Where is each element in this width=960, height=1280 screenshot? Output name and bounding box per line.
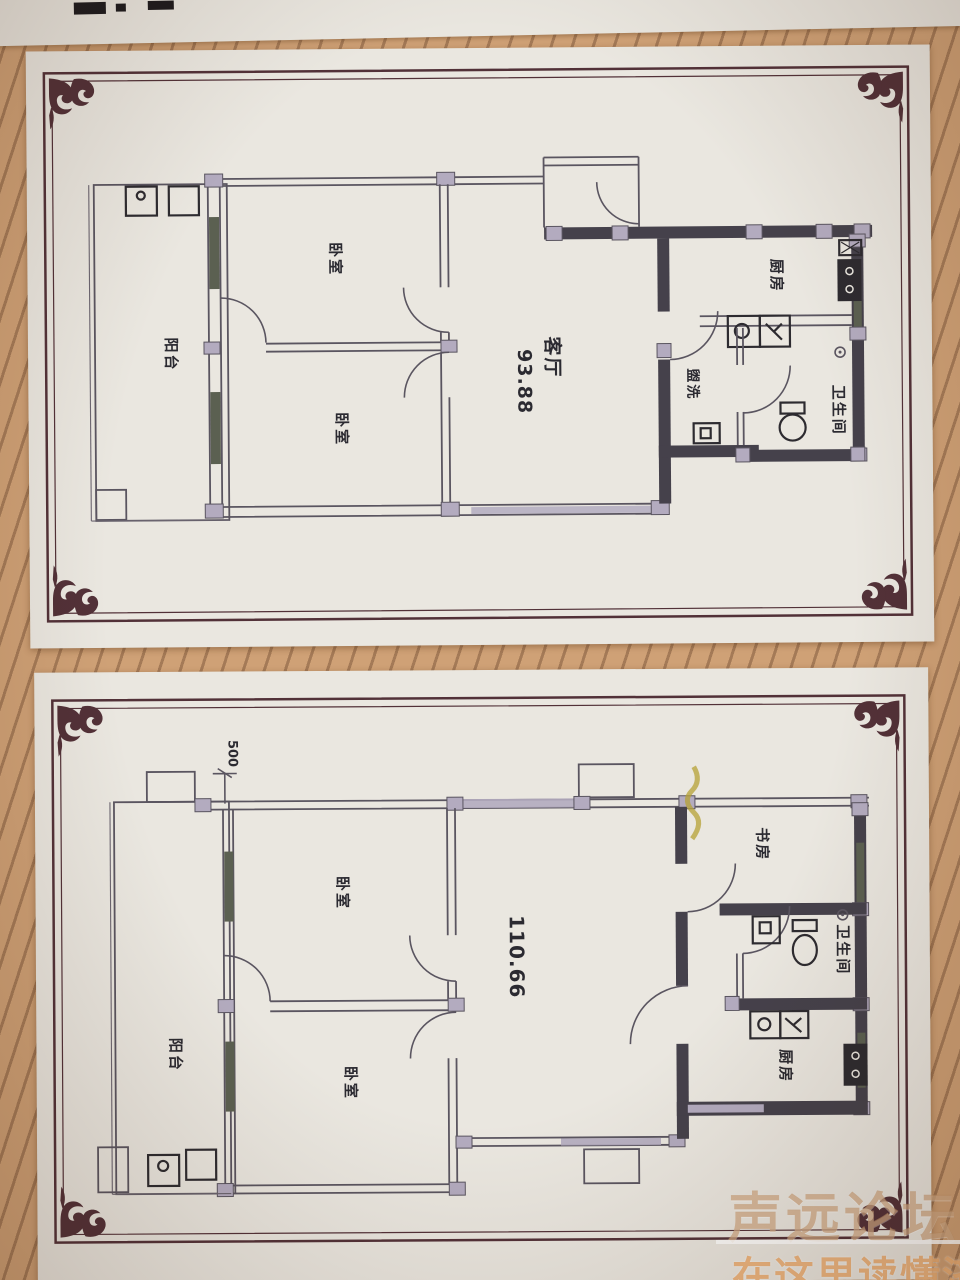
entry-and-kitchen-wall xyxy=(544,155,873,241)
corner-flourish-icon xyxy=(60,1186,105,1237)
living-area-value: 93.88 xyxy=(513,349,536,414)
ornate-frame xyxy=(52,695,907,1242)
room-label-living: 客厅 xyxy=(541,336,564,378)
dimension-value: 500 xyxy=(225,740,240,767)
floor-plan-card-1: 阳台 卧室 卧室 客厅 93.88 厨房 盥洗 卫生间 xyxy=(26,44,935,648)
room-label-bedroom-top: 卧室 xyxy=(333,876,351,910)
photo-of-floorplan-page: 阳台 卧室 卧室 客厅 93.88 厨房 盥洗 卫生间 xyxy=(0,0,960,1280)
room-label-study: 书房 xyxy=(753,827,771,861)
room-label-kitchen: 厨房 xyxy=(776,1049,794,1083)
room-label-balcony: 阳台 xyxy=(162,337,180,371)
balcony-outline xyxy=(96,772,232,1195)
bottom-wall xyxy=(91,501,669,522)
corner-flourish-icon xyxy=(57,705,102,756)
floor-plan-1-drawing: 阳台 卧室 卧室 客厅 93.88 厨房 盥洗 卫生间 xyxy=(26,44,935,648)
room-label-balcony: 阳台 xyxy=(166,1038,184,1072)
corner-flourish-icon xyxy=(53,565,99,616)
dimension-marker xyxy=(213,769,237,804)
room-label-bedroom-bottom: 卧室 xyxy=(333,412,351,446)
room-label-bedroom-bottom: 卧室 xyxy=(342,1066,360,1100)
hall-wall xyxy=(629,806,737,1139)
bedroom-walls xyxy=(203,171,547,507)
corner-flourish-icon xyxy=(858,72,904,123)
top-wall xyxy=(195,763,869,812)
room-label-bathroom: 卫生间 xyxy=(829,385,847,436)
remnant-fixture-icon xyxy=(74,2,106,15)
corner-flourish-icon xyxy=(49,78,95,129)
room-label-bedroom-top: 卧室 xyxy=(326,242,344,276)
remnant-fixture-icon xyxy=(116,3,126,11)
room-label-washroom: 盥洗 xyxy=(684,368,701,400)
living-area-value: 110.66 xyxy=(505,915,530,998)
room-label-bathroom: 卫生间 xyxy=(834,924,852,975)
remnant-fixture-icon xyxy=(148,0,174,10)
corner-flourish-icon xyxy=(854,700,899,751)
corner-flourish-icon xyxy=(862,559,908,610)
watermark-tagline: 在这里读懂济宁 xyxy=(732,1244,960,1280)
room-label-kitchen: 厨房 xyxy=(767,259,785,293)
bedroom-walls xyxy=(110,808,465,1197)
living-bottom-wall xyxy=(456,1135,685,1184)
